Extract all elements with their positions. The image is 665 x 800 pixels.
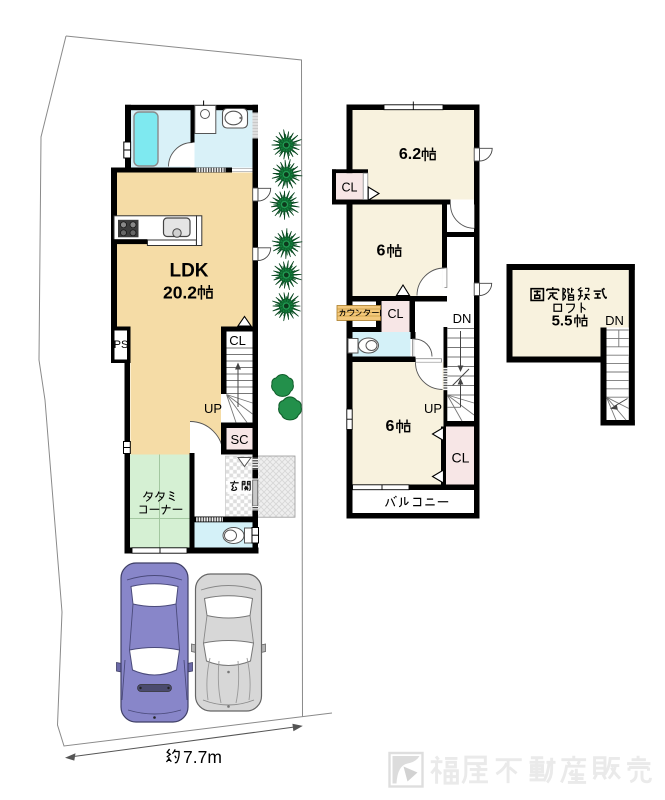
svg-text:DN: DN xyxy=(605,313,624,328)
svg-text:20.2: 20.2 xyxy=(163,283,197,303)
svg-text:6: 6 xyxy=(386,418,395,435)
svg-text:5.5: 5.5 xyxy=(552,313,573,330)
svg-text:CL: CL xyxy=(342,181,358,195)
svg-text:SC: SC xyxy=(230,432,248,447)
svg-text:CL: CL xyxy=(388,307,404,321)
svg-text:7.7m: 7.7m xyxy=(183,747,222,767)
svg-text:DN: DN xyxy=(453,311,472,326)
svg-text:CL: CL xyxy=(229,333,246,348)
svg-text:LDK: LDK xyxy=(169,261,208,282)
svg-text:UP: UP xyxy=(424,401,442,416)
svg-text:PS: PS xyxy=(114,339,129,351)
svg-text:UP: UP xyxy=(204,401,222,416)
svg-text:6.2: 6.2 xyxy=(399,146,421,163)
svg-text:CL: CL xyxy=(452,450,470,466)
svg-text:6: 6 xyxy=(377,243,386,260)
